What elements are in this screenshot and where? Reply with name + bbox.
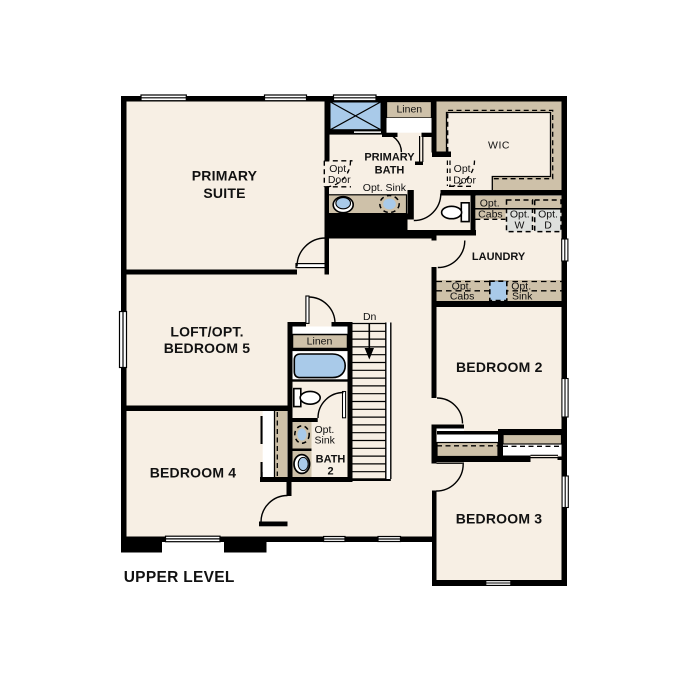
svg-text:Cabs: Cabs	[478, 209, 503, 221]
svg-text:SUITE: SUITE	[203, 185, 245, 201]
svg-text:D: D	[544, 220, 552, 232]
svg-text:Door: Door	[328, 174, 351, 186]
svg-text:BEDROOM 2: BEDROOM 2	[456, 359, 543, 375]
svg-text:BEDROOM 5: BEDROOM 5	[164, 340, 251, 356]
svg-text:W: W	[515, 220, 525, 232]
svg-text:PRIMARY: PRIMARY	[364, 151, 415, 163]
svg-text:2: 2	[327, 466, 333, 478]
svg-text:BEDROOM 4: BEDROOM 4	[150, 465, 237, 481]
svg-text:BEDROOM 3: BEDROOM 3	[456, 511, 543, 527]
svg-text:Opt.: Opt.	[454, 163, 474, 175]
svg-text:Dn: Dn	[363, 311, 377, 323]
svg-text:BATH: BATH	[375, 164, 405, 176]
svg-text:Opt. Sink: Opt. Sink	[363, 182, 407, 194]
svg-text:Linen: Linen	[396, 104, 422, 116]
svg-text:BATH: BATH	[316, 454, 346, 466]
svg-text:Linen: Linen	[307, 335, 333, 347]
svg-text:Sink: Sink	[315, 435, 336, 447]
svg-text:LAUNDRY: LAUNDRY	[472, 251, 526, 263]
svg-text:Sink: Sink	[512, 291, 533, 303]
svg-text:WIC: WIC	[488, 140, 510, 152]
svg-text:Cabs: Cabs	[450, 291, 475, 303]
svg-text:UPPER LEVEL: UPPER LEVEL	[124, 569, 235, 586]
svg-text:Door: Door	[453, 175, 476, 187]
svg-text:Opt.: Opt.	[329, 163, 349, 175]
svg-text:LOFT/OPT.: LOFT/OPT.	[170, 324, 243, 340]
svg-text:PRIMARY: PRIMARY	[192, 168, 258, 184]
